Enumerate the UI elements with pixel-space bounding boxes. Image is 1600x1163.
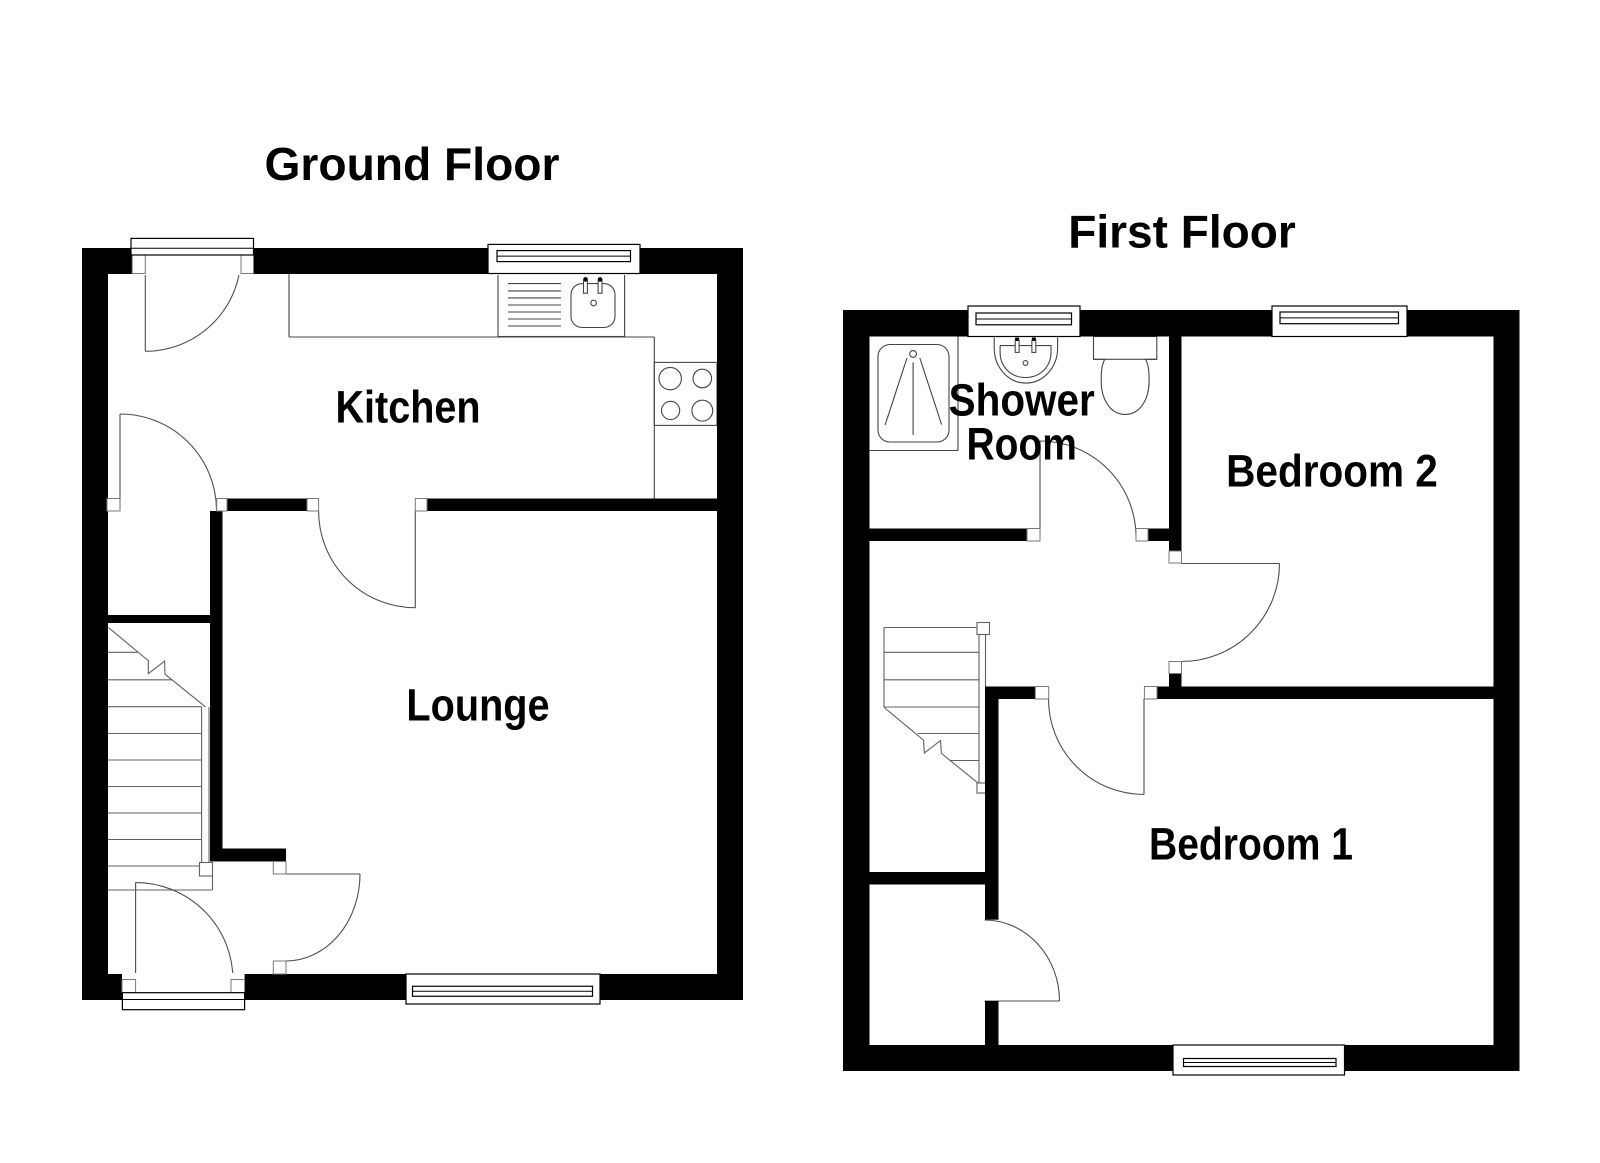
- svg-text:Bedroom 1: Bedroom 1: [1149, 819, 1353, 870]
- svg-text:Kitchen: Kitchen: [336, 382, 481, 433]
- svg-text:Room: Room: [967, 418, 1077, 469]
- svg-text:First Floor: First Floor: [1068, 206, 1296, 258]
- svg-text:Ground Floor: Ground Floor: [265, 138, 560, 190]
- svg-text:Lounge: Lounge: [406, 680, 549, 731]
- svg-text:Bedroom 2: Bedroom 2: [1226, 446, 1438, 497]
